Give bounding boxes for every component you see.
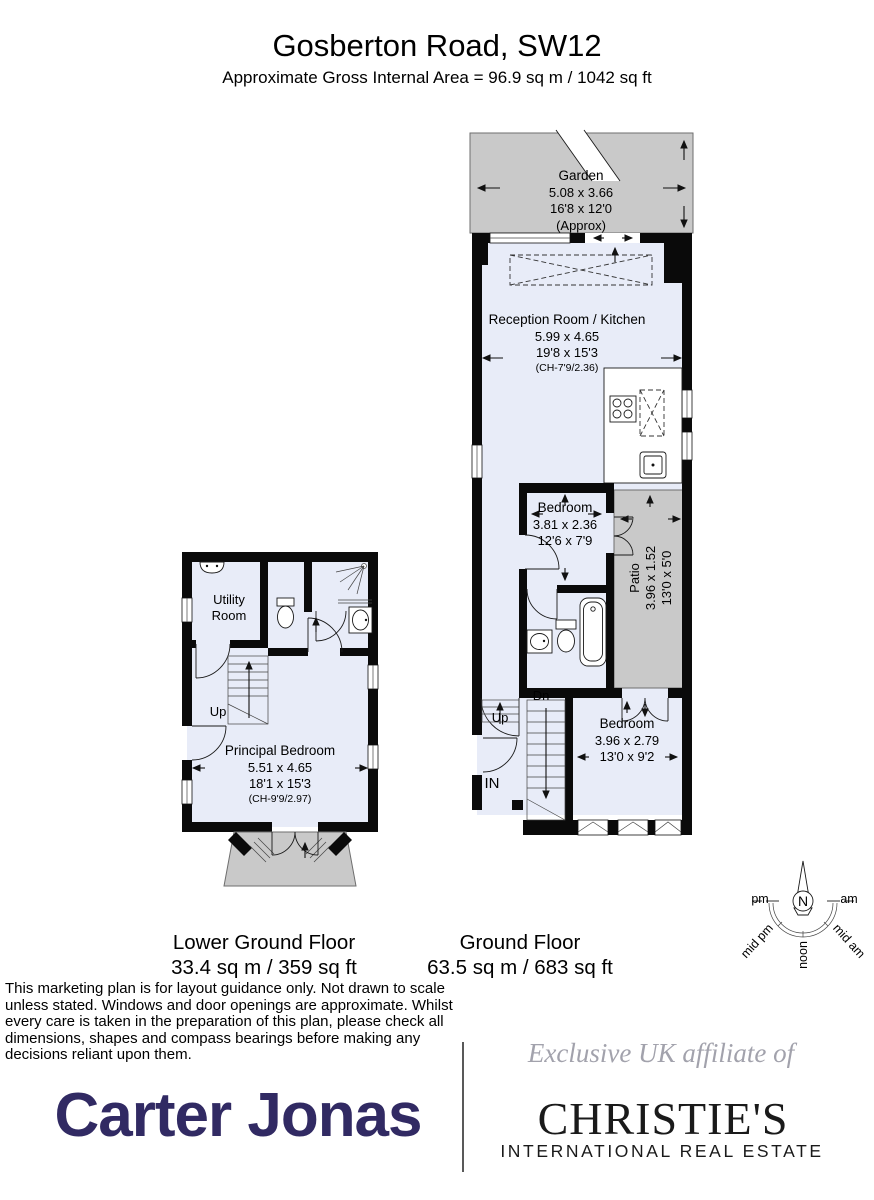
christies-logo-subtitle: INTERNATIONAL REAL ESTATE — [500, 1141, 823, 1162]
toilet-icon — [556, 620, 576, 652]
stairs-up-lgf-label: Up — [210, 704, 227, 719]
utility-room-label: Utility Room — [197, 592, 261, 624]
garden-label: Garden 5.08 x 3.66 16'8 x 12'0 (Approx) — [549, 168, 613, 234]
compass-am-label: am — [840, 892, 857, 906]
affiliate-text: Exclusive UK affiliate of — [528, 1038, 794, 1069]
floorplan-page: Gosberton Road, SW12 Approximate Gross I… — [0, 0, 874, 1200]
ground-floor-caption: Ground Floor 63.5 sq m / 683 sq ft — [427, 930, 613, 980]
bedroom-middle-label: Bedroom 3.81 x 2.36 12'6 x 7'9 — [533, 500, 597, 550]
disclaimer-text: This marketing plan is for layout guidan… — [5, 981, 475, 1064]
entrance-label: IN — [485, 775, 500, 792]
principal-bedroom-label: Principal Bedroom 5.51 x 4.65 18'1 x 15'… — [225, 743, 335, 806]
patio-label: Patio 3.96 x 1.52 13'0 x 5'0 — [627, 546, 675, 610]
kitchen-counter — [604, 368, 682, 483]
compass-north-label: N — [798, 893, 808, 909]
stairs-down-label: Dn — [533, 688, 550, 703]
reception-label: Reception Room / Kitchen 5.99 x 4.65 19'… — [489, 312, 646, 375]
bath-icon — [580, 598, 606, 666]
christies-logo: CHRISTIE'S — [538, 1092, 789, 1145]
carter-jonas-logo: Carter Jonas — [54, 1080, 421, 1151]
lower-ground-floor-caption: Lower Ground Floor 33.4 sq m / 359 sq ft — [171, 930, 357, 980]
bedroom-front-label: Bedroom 3.96 x 2.79 13'0 x 9'2 — [595, 716, 659, 766]
compass-noon-label: noon — [796, 941, 810, 969]
shower-basin-icon — [349, 607, 372, 633]
ground-floor-plan — [470, 130, 693, 835]
wc-toilet-icon — [277, 598, 294, 628]
stairs-up-gf-label: Up — [492, 710, 509, 725]
basin-icon — [527, 630, 552, 653]
compass-pm-label: pm — [751, 892, 768, 906]
